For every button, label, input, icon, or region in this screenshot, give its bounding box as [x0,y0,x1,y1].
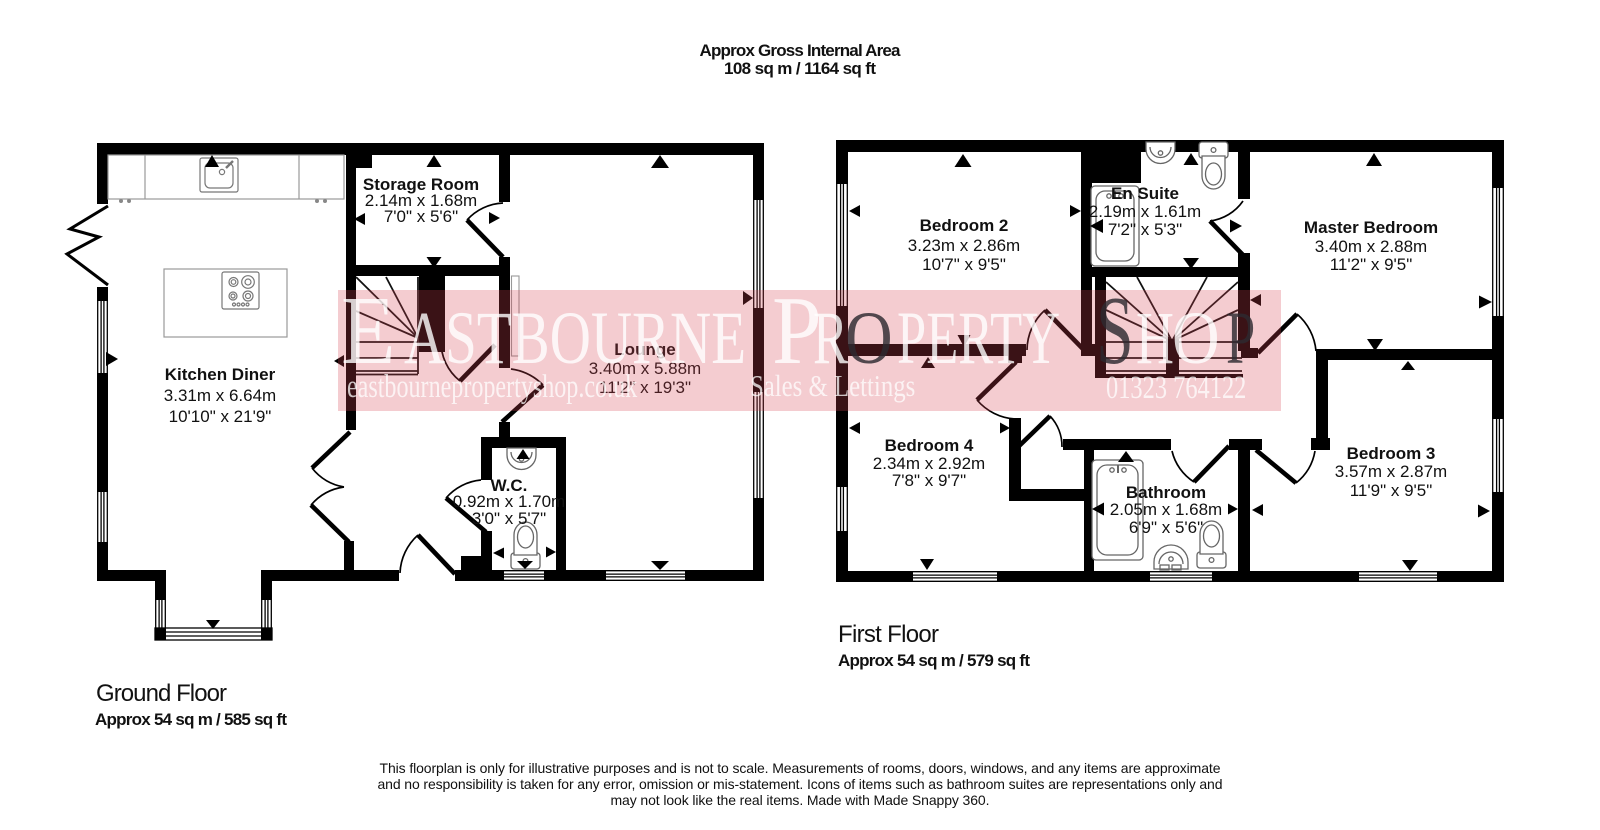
svg-text:and no responsibility is taken: and no responsibility is taken for any e… [378,776,1223,792]
svg-text:3'0" x 5'7": 3'0" x 5'7" [472,509,546,528]
svg-text:Kitchen Diner: Kitchen Diner [165,365,276,384]
svg-text:108 sq m / 1164 sq ft: 108 sq m / 1164 sq ft [724,59,876,78]
svg-text:may not look like the real ite: may not look like the real items. Made w… [611,792,990,808]
svg-text:7'2" x 5'3": 7'2" x 5'3" [1108,220,1182,239]
svg-text:11'2" x 9'5": 11'2" x 9'5" [1330,255,1413,274]
svg-text:O: O [1172,297,1220,380]
svg-text:2.05m x 1.68m: 2.05m x 1.68m [1110,500,1222,519]
svg-text:eastbournepropertyshop.co.uk: eastbournepropertyshop.co.uk [347,368,638,405]
svg-text:6'9" x 5'6": 6'9" x 5'6" [1129,518,1203,537]
svg-text:First Floor: First Floor [838,621,939,648]
svg-text:3.31m x 6.64m: 3.31m x 6.64m [164,386,276,405]
svg-text:7'0" x 5'6": 7'0" x 5'6" [384,207,458,226]
svg-text:3.23m x 2.86m: 3.23m x 2.86m [908,236,1020,255]
svg-text:10'10" x 21'9": 10'10" x 21'9" [169,407,272,426]
svg-text:Approx Gross Internal Area: Approx Gross Internal Area [700,41,902,60]
svg-text:01323 764122: 01323 764122 [1106,370,1246,406]
svg-text:3.57m x 2.87m: 3.57m x 2.87m [1335,462,1447,481]
svg-text:En Suite: En Suite [1111,184,1179,203]
svg-text:3.40m x 2.88m: 3.40m x 2.88m [1315,237,1427,256]
svg-text:O: O [845,297,893,380]
svg-text:Approx 54 sq m / 579 sq ft: Approx 54 sq m / 579 sq ft [838,651,1030,670]
svg-text:P: P [1226,297,1255,380]
svg-text:2.19m x 1.61m: 2.19m x 1.61m [1089,202,1201,221]
svg-text:H: H [1136,297,1174,380]
svg-text:Master Bedroom: Master Bedroom [1304,218,1438,237]
svg-text:Ground Floor: Ground Floor [96,680,227,707]
svg-text:Bedroom 4: Bedroom 4 [885,436,974,455]
svg-text:Bedroom 2: Bedroom 2 [920,216,1009,235]
svg-text:10'7" x 9'5": 10'7" x 9'5" [922,255,1006,274]
svg-text:11'9" x 9'5": 11'9" x 9'5" [1350,481,1433,500]
svg-text:7'8" x 9'7": 7'8" x 9'7" [892,471,966,490]
svg-text:PERTY: PERTY [897,297,1060,380]
svg-text:R: R [813,297,849,380]
svg-text:Sales & Lettings: Sales & Lettings [750,369,915,403]
svg-text:Bedroom 3: Bedroom 3 [1347,444,1436,463]
svg-text:Approx 54 sq m / 585 sq ft: Approx 54 sq m / 585 sq ft [95,710,287,729]
svg-text:This floorplan is only for ill: This floorplan is only for illustrative … [380,760,1221,776]
